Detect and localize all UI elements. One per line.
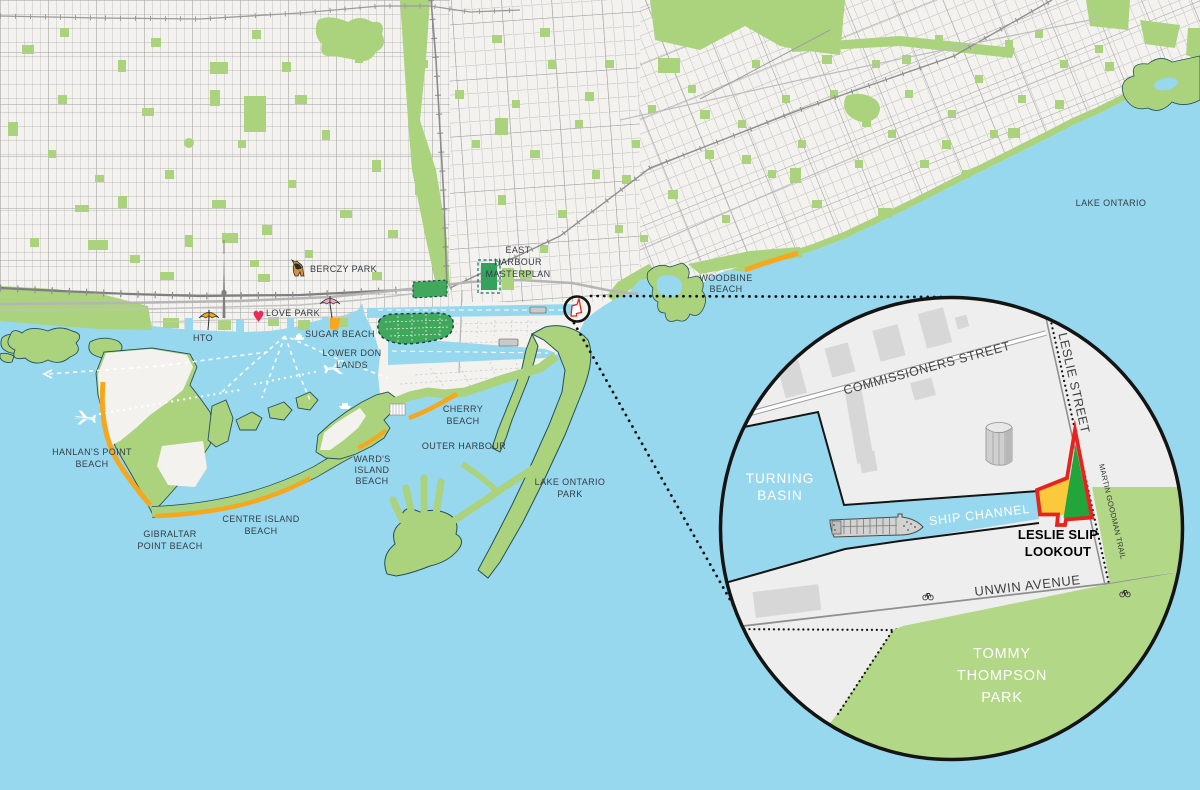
svg-text:WARD'S: WARD'S [353, 454, 390, 464]
svg-text:BEACH: BEACH [709, 284, 742, 294]
svg-text:POINT BEACH: POINT BEACH [137, 541, 202, 551]
svg-text:TURNING: TURNING [746, 471, 815, 486]
svg-text:GIBRALTAR: GIBRALTAR [143, 529, 196, 539]
svg-text:CHERRY: CHERRY [443, 404, 483, 414]
svg-text:ISLAND: ISLAND [355, 465, 390, 475]
svg-text:CENTRE ISLAND: CENTRE ISLAND [222, 514, 299, 524]
svg-text:HANLAN'S POINT: HANLAN'S POINT [52, 447, 132, 457]
svg-text:BEACH: BEACH [355, 476, 388, 486]
svg-text:BEACH: BEACH [446, 416, 479, 426]
svg-text:SUGAR BEACH: SUGAR BEACH [305, 329, 375, 339]
svg-text:LOWER DON: LOWER DON [322, 348, 381, 358]
svg-text:TOMMY: TOMMY [973, 646, 1031, 662]
svg-text:LAKE ONTARIO: LAKE ONTARIO [535, 477, 606, 487]
svg-text:BEACH: BEACH [244, 526, 277, 536]
svg-text:LOVE PARK: LOVE PARK [266, 308, 320, 318]
svg-text:HTO: HTO [193, 333, 213, 343]
svg-text:THOMPSON: THOMPSON [957, 668, 1047, 684]
svg-text:WOODBINE: WOODBINE [699, 273, 752, 283]
svg-text:PARK: PARK [981, 690, 1023, 706]
svg-text:BERCZY PARK: BERCZY PARK [310, 264, 377, 274]
svg-text:EAST: EAST [505, 245, 530, 255]
svg-text:LANDS: LANDS [336, 360, 368, 370]
svg-text:MASTERPLAN: MASTERPLAN [485, 269, 550, 279]
svg-text:LOOKOUT: LOOKOUT [1025, 544, 1091, 559]
svg-text:LAKE ONTARIO: LAKE ONTARIO [1076, 198, 1147, 208]
svg-text:PARK: PARK [557, 489, 582, 499]
svg-text:BEACH: BEACH [75, 459, 108, 469]
svg-text:HARBOUR: HARBOUR [494, 257, 542, 267]
svg-text:LESLIE SLIP: LESLIE SLIP [1018, 527, 1098, 542]
svg-text:BASIN: BASIN [757, 488, 803, 503]
svg-text:OUTER HARBOUR: OUTER HARBOUR [422, 441, 506, 451]
